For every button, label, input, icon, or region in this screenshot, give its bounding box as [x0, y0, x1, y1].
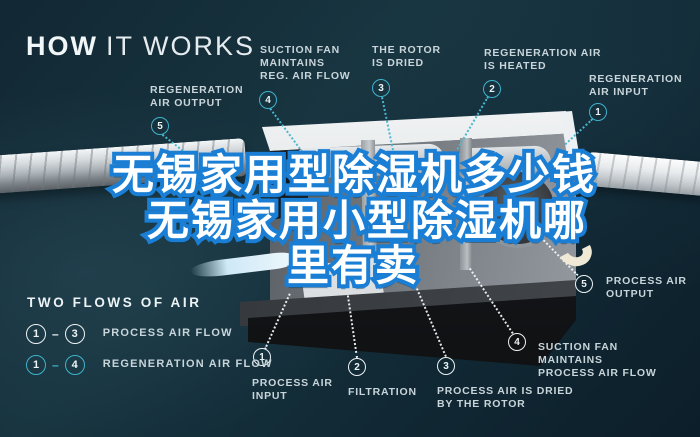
step-marker-reg-1: 1 [589, 103, 607, 121]
legend-circle-3: 3 [65, 324, 85, 344]
step-number: 5 [157, 121, 163, 132]
step-number: 5 [581, 279, 587, 290]
legend-number: 1 [33, 359, 39, 371]
infographic-canvas: HOWIT WORKS 5 4 3 2 1 REGENERATION AIR O… [0, 0, 700, 437]
regeneration-input-duct [585, 152, 700, 197]
legend-label-regeneration: REGENERATION AIR FLOW [103, 358, 273, 372]
callout-label-proc-air-output: PROCESS AIR OUTPUT [606, 275, 698, 301]
step-number: 2 [354, 362, 360, 373]
step-marker-proc-2: 2 [348, 358, 366, 376]
step-marker-reg-2: 2 [483, 80, 501, 98]
legend-row-regeneration: 1 – 4 REGENERATION AIR FLOW [26, 355, 273, 375]
step-number: 1 [595, 107, 601, 118]
callout-label-proc-air-dried: PROCESS AIR IS DRIED BY THE ROTOR [437, 385, 579, 411]
title-bold: HOW [26, 31, 98, 61]
legend-number: 1 [33, 328, 39, 340]
step-marker-reg-5: 5 [151, 117, 169, 135]
step-marker-proc-4: 4 [508, 333, 526, 351]
page-title: HOWIT WORKS [26, 31, 255, 62]
legend-number: 3 [72, 328, 78, 340]
title-light: IT WORKS [106, 31, 255, 61]
overlay-text-fill: 里有卖 [287, 245, 419, 287]
legend-circle-1b: 1 [26, 355, 46, 375]
step-number: 4 [514, 337, 520, 348]
callout-label-suction-fan-reg: SUCTION FAN MAINTAINS REG. AIR FLOW [260, 44, 356, 83]
legend-dash: – [52, 358, 59, 372]
step-number: 4 [265, 95, 271, 106]
step-marker-reg-4: 4 [259, 91, 277, 109]
legend-circle-1: 1 [26, 324, 46, 344]
callout-label-reg-air-input: REGENERATION AIR INPUT [589, 73, 684, 99]
legend-label-process: PROCESS AIR FLOW [103, 327, 233, 341]
step-number: 2 [489, 84, 495, 95]
callout-label-proc-air-input: PROCESS AIR INPUT [252, 377, 342, 403]
overlay-text-fill: 无锡家用小型除湿机哪 [147, 200, 587, 242]
step-marker-reg-3: 3 [372, 79, 390, 97]
legend-row-process: 1 – 3 PROCESS AIR FLOW [26, 324, 233, 344]
step-number: 3 [443, 361, 449, 372]
legend-number: 4 [72, 359, 78, 371]
callout-label-reg-air-heated: REGENERATION AIR IS HEATED [484, 47, 602, 73]
step-number: 3 [378, 83, 384, 94]
legend-circle-4: 4 [65, 355, 85, 375]
step-marker-proc-5: 5 [575, 275, 593, 293]
legend-title: TWO FLOWS OF AIR [27, 295, 202, 310]
callout-label-reg-air-output: REGENERATION AIR OUTPUT [150, 84, 242, 110]
callout-label-suction-fan-proc: SUCTION FAN MAINTAINS PROCESS AIR FLOW [538, 341, 663, 380]
legend-dash: – [52, 327, 59, 341]
step-marker-proc-3: 3 [437, 357, 455, 375]
overlay-text-fill: 无锡家用型除湿机多少钱 [112, 154, 596, 196]
callout-label-rotor-dried: THE ROTOR IS DRIED [372, 44, 452, 70]
